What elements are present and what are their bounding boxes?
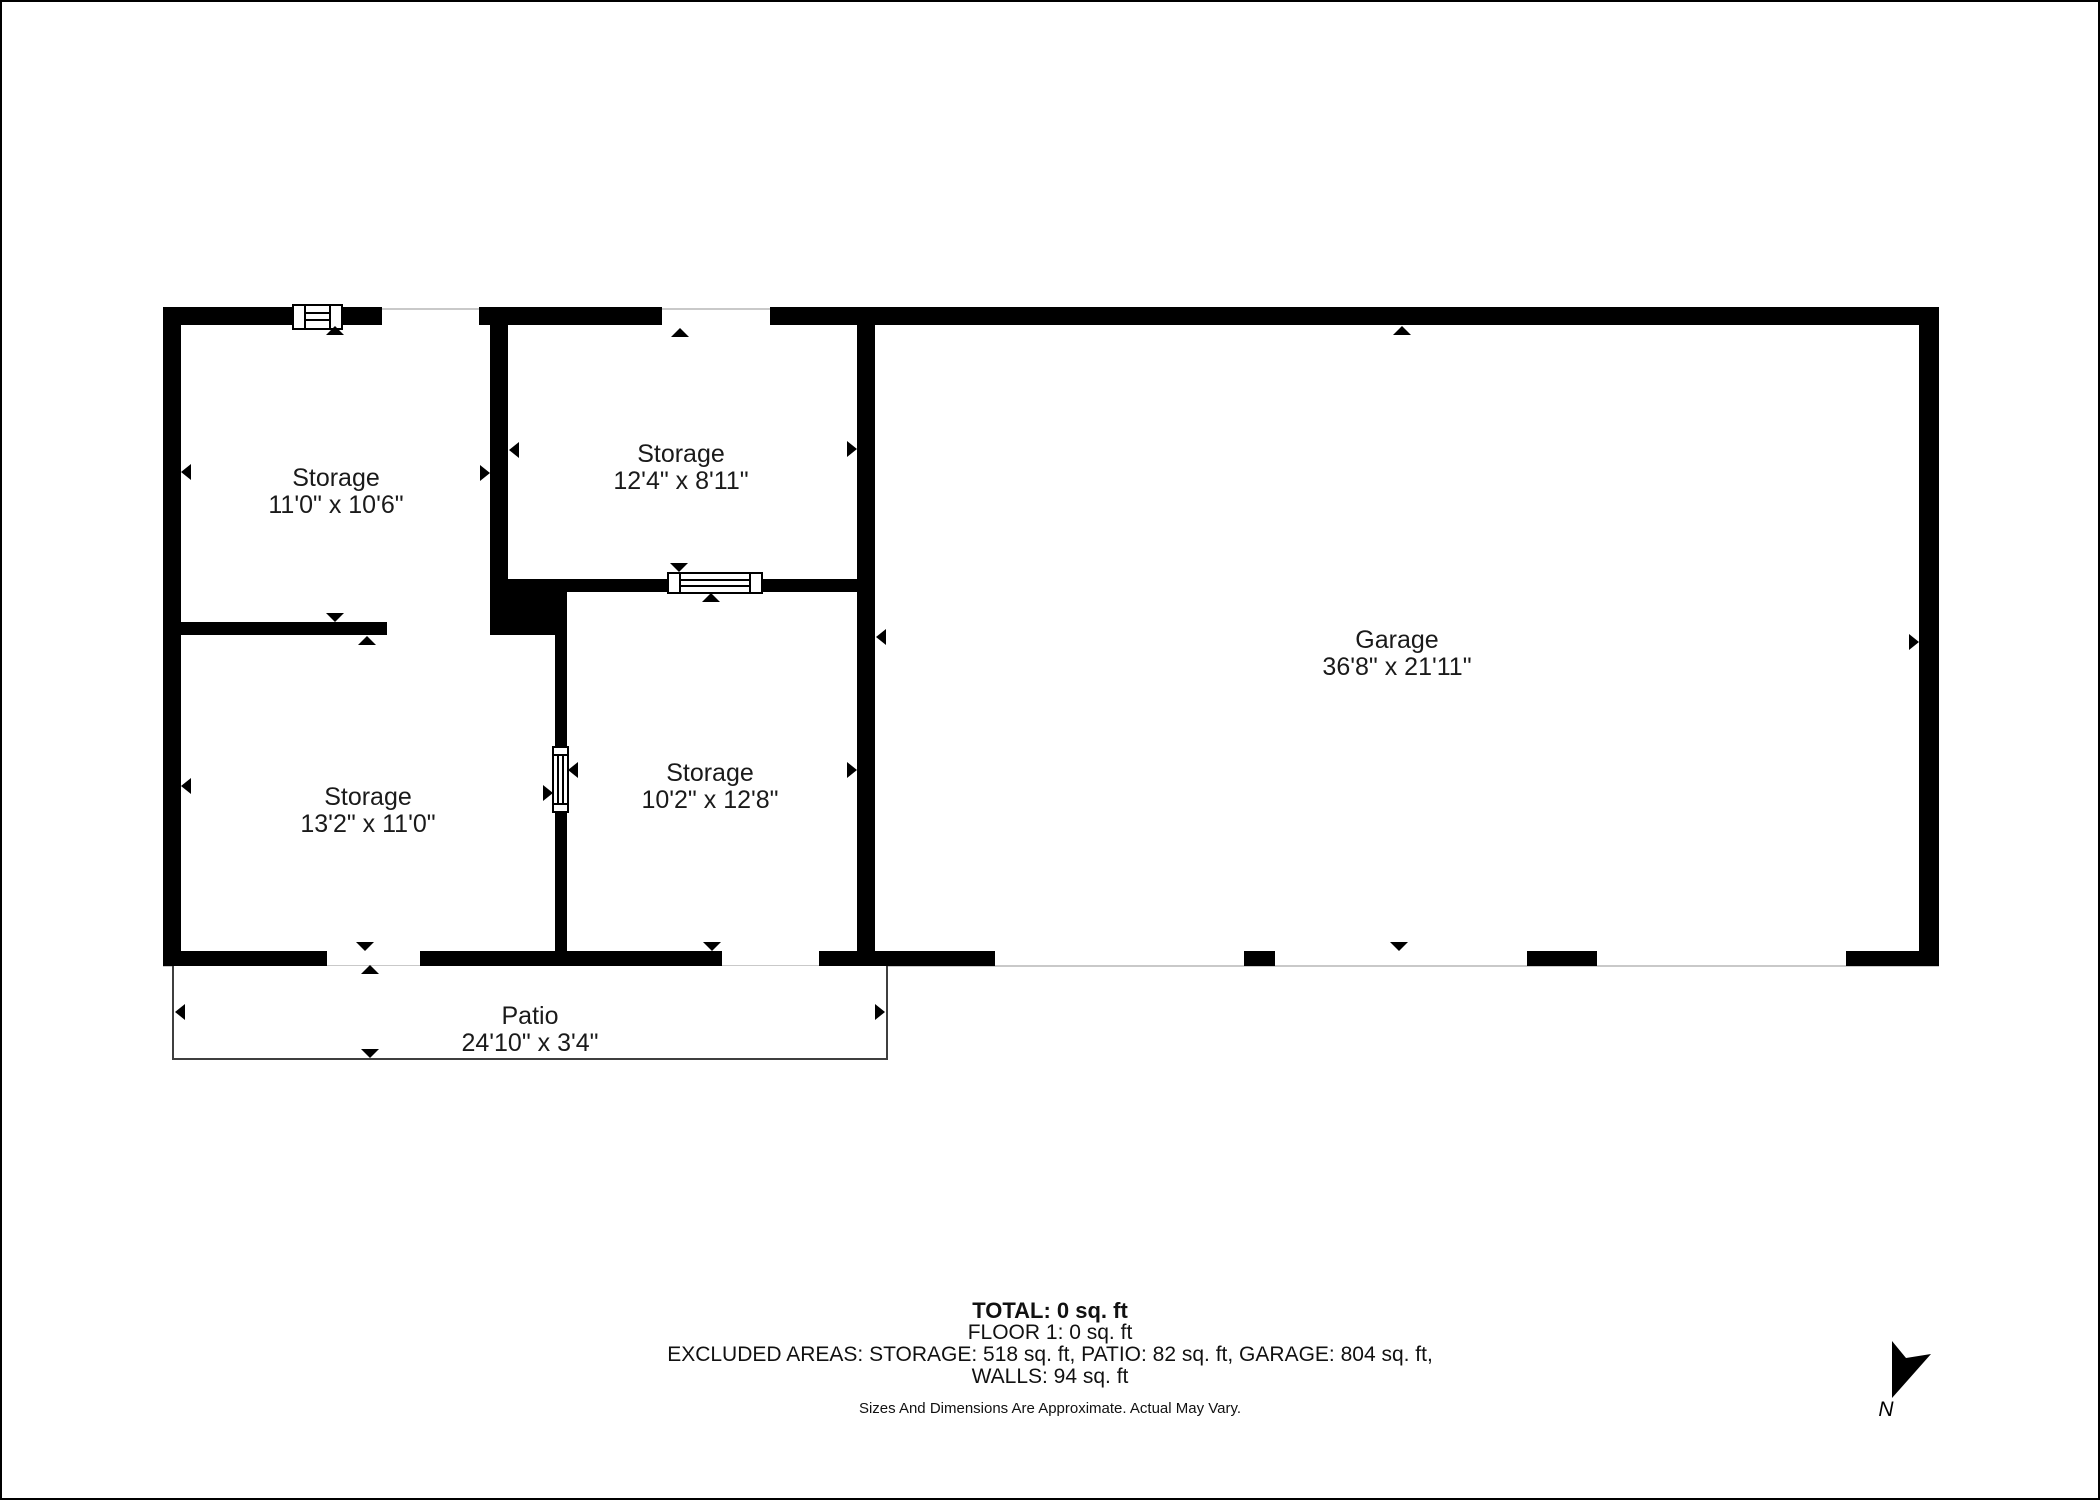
north-arrow-icon — [1892, 1341, 1931, 1398]
room-label-storage-4: Storage 10'2" x 12'8" — [641, 760, 778, 814]
compass-north-label: N — [1878, 1398, 1893, 1422]
marker-down — [326, 613, 344, 622]
marker-left — [568, 762, 578, 778]
room-dimensions: 11'0" x 10'6" — [268, 492, 403, 519]
room-dimensions: 24'10" x 3'4" — [461, 1030, 598, 1057]
wall-bottom-1 — [163, 951, 327, 966]
summary-excluded: EXCLUDED AREAS: STORAGE: 518 sq. ft, PAT… — [667, 1344, 1433, 1366]
room-name: Storage — [613, 441, 748, 468]
opening-edge-lines — [163, 309, 1939, 966]
wall-bottom-3 — [819, 951, 995, 966]
marker-left — [509, 442, 519, 458]
marker-down — [356, 942, 374, 951]
room-dimensions: 10'2" x 12'8" — [641, 787, 778, 814]
room-name: Storage — [268, 465, 403, 492]
summary-walls: WALLS: 94 sq. ft — [667, 1366, 1433, 1388]
marker-left — [181, 464, 191, 480]
wall-top-1 — [163, 307, 295, 325]
wall-h1-storage-divider — [181, 622, 387, 635]
wall-v2-upper — [555, 635, 567, 747]
marker-right — [1909, 634, 1919, 650]
marker-down — [670, 563, 688, 572]
wall-left — [163, 307, 181, 965]
floor-plan-drawing — [2, 2, 2100, 1500]
room-label-storage-3: Storage 13'2" x 11'0" — [300, 784, 435, 838]
room-name: Garage — [1322, 627, 1471, 654]
window-icon — [668, 573, 762, 593]
marker-up — [1393, 326, 1411, 335]
floor-plan-canvas: Storage 11'0" x 10'6" Storage 12'4" x 8'… — [0, 0, 2100, 1500]
marker-right — [480, 465, 490, 481]
marker-left — [876, 629, 886, 645]
room-label-patio: Patio 24'10" x 3'4" — [461, 1003, 598, 1057]
wall-right — [1919, 307, 1939, 965]
marker-left — [181, 778, 191, 794]
wall-v2-lower — [555, 812, 567, 951]
wall-v3-garage-divider — [857, 307, 875, 951]
marker-up — [671, 328, 689, 337]
marker-right — [543, 785, 553, 801]
marker-down — [703, 942, 721, 951]
marker-up — [702, 593, 720, 602]
wall-bottom-4 — [1846, 951, 1939, 966]
wall-v1-storage-divider — [490, 307, 508, 592]
room-name: Storage — [300, 784, 435, 811]
wall-top-4 — [770, 307, 1939, 325]
walls — [163, 307, 1939, 966]
door-icon — [553, 747, 568, 812]
dimension-markers — [175, 326, 1919, 1058]
wall-bottom-pillar-1 — [1244, 951, 1275, 966]
wall-h2-left — [508, 579, 668, 592]
marker-right — [847, 441, 857, 457]
room-dimensions: 12'4" x 8'11" — [613, 468, 748, 495]
wall-h2-right — [762, 579, 857, 592]
room-name: Storage — [641, 760, 778, 787]
wall-top-2 — [340, 307, 382, 325]
room-label-storage-1: Storage 11'0" x 10'6" — [268, 465, 403, 519]
room-label-garage: Garage 36'8" x 21'11" — [1322, 627, 1471, 681]
room-dimensions: 13'2" x 11'0" — [300, 811, 435, 838]
summary-floor: FLOOR 1: 0 sq. ft — [667, 1322, 1433, 1344]
disclaimer-text: Sizes And Dimensions Are Approximate. Ac… — [859, 1400, 1241, 1417]
marker-right — [847, 762, 857, 778]
wall-bottom-pillar-2 — [1527, 951, 1597, 966]
marker-down — [1390, 942, 1408, 951]
marker-up — [358, 636, 376, 645]
summary-total: TOTAL: 0 sq. ft — [667, 1300, 1433, 1322]
room-name: Patio — [461, 1003, 598, 1030]
area-summary: TOTAL: 0 sq. ft FLOOR 1: 0 sq. ft EXCLUD… — [667, 1300, 1433, 1388]
room-label-storage-2: Storage 12'4" x 8'11" — [613, 441, 748, 495]
wall-bottom-2 — [420, 951, 722, 966]
room-dimensions: 36'8" x 21'11" — [1322, 654, 1471, 681]
window-icon — [293, 305, 342, 329]
